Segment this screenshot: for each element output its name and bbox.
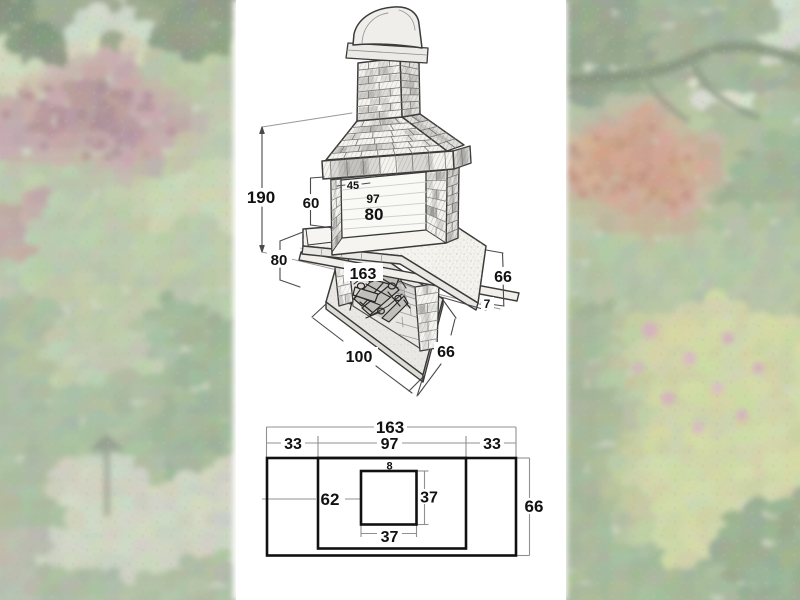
svg-text:66: 66 [525, 497, 544, 516]
svg-text:33: 33 [284, 436, 302, 453]
svg-text:37: 37 [420, 490, 438, 507]
svg-text:62: 62 [321, 490, 340, 509]
svg-text:97: 97 [381, 436, 399, 453]
svg-text:190: 190 [247, 188, 275, 207]
svg-text:163: 163 [376, 418, 404, 437]
svg-text:7: 7 [484, 297, 491, 311]
svg-text:33: 33 [483, 436, 501, 453]
svg-text:100: 100 [346, 349, 373, 366]
svg-text:66: 66 [437, 344, 455, 361]
svg-text:80: 80 [271, 252, 288, 269]
svg-text:80: 80 [365, 205, 384, 224]
svg-text:37: 37 [381, 529, 399, 546]
svg-text:60: 60 [303, 195, 320, 212]
svg-text:66: 66 [494, 269, 512, 286]
svg-text:45: 45 [347, 180, 359, 192]
svg-text:97: 97 [366, 192, 380, 206]
svg-text:163: 163 [350, 266, 377, 283]
